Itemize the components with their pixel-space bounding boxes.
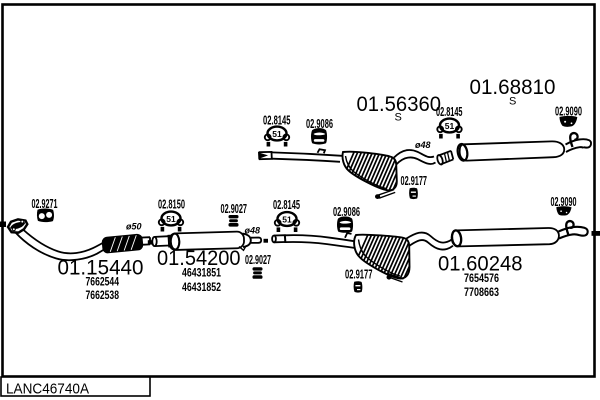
svg-text:7708663: 7708663 [464, 285, 499, 299]
svg-text:02.9177: 02.9177 [345, 268, 373, 282]
svg-text:02.9027: 02.9027 [221, 202, 248, 216]
svg-text:LANC46740A: LANC46740A [6, 381, 89, 398]
svg-text:02.8145: 02.8145 [263, 114, 291, 128]
svg-text:02.9177: 02.9177 [401, 174, 428, 188]
svg-text:46431851: 46431851 [182, 266, 221, 280]
svg-text:S: S [509, 96, 516, 108]
svg-text:7654576: 7654576 [464, 271, 499, 285]
svg-text:ø50: ø50 [126, 222, 142, 232]
svg-text:ø48: ø48 [245, 226, 261, 236]
svg-text:7662538: 7662538 [86, 288, 120, 302]
svg-text:02.8150: 02.8150 [158, 198, 185, 212]
svg-text:02.8145: 02.8145 [273, 198, 300, 212]
svg-text:S: S [395, 112, 402, 124]
svg-text:02.9027: 02.9027 [245, 253, 271, 267]
svg-text:7662544: 7662544 [86, 275, 120, 289]
svg-text:46431852: 46431852 [182, 280, 221, 294]
svg-text:02.8145: 02.8145 [436, 105, 463, 119]
svg-text:ø48: ø48 [415, 140, 431, 150]
